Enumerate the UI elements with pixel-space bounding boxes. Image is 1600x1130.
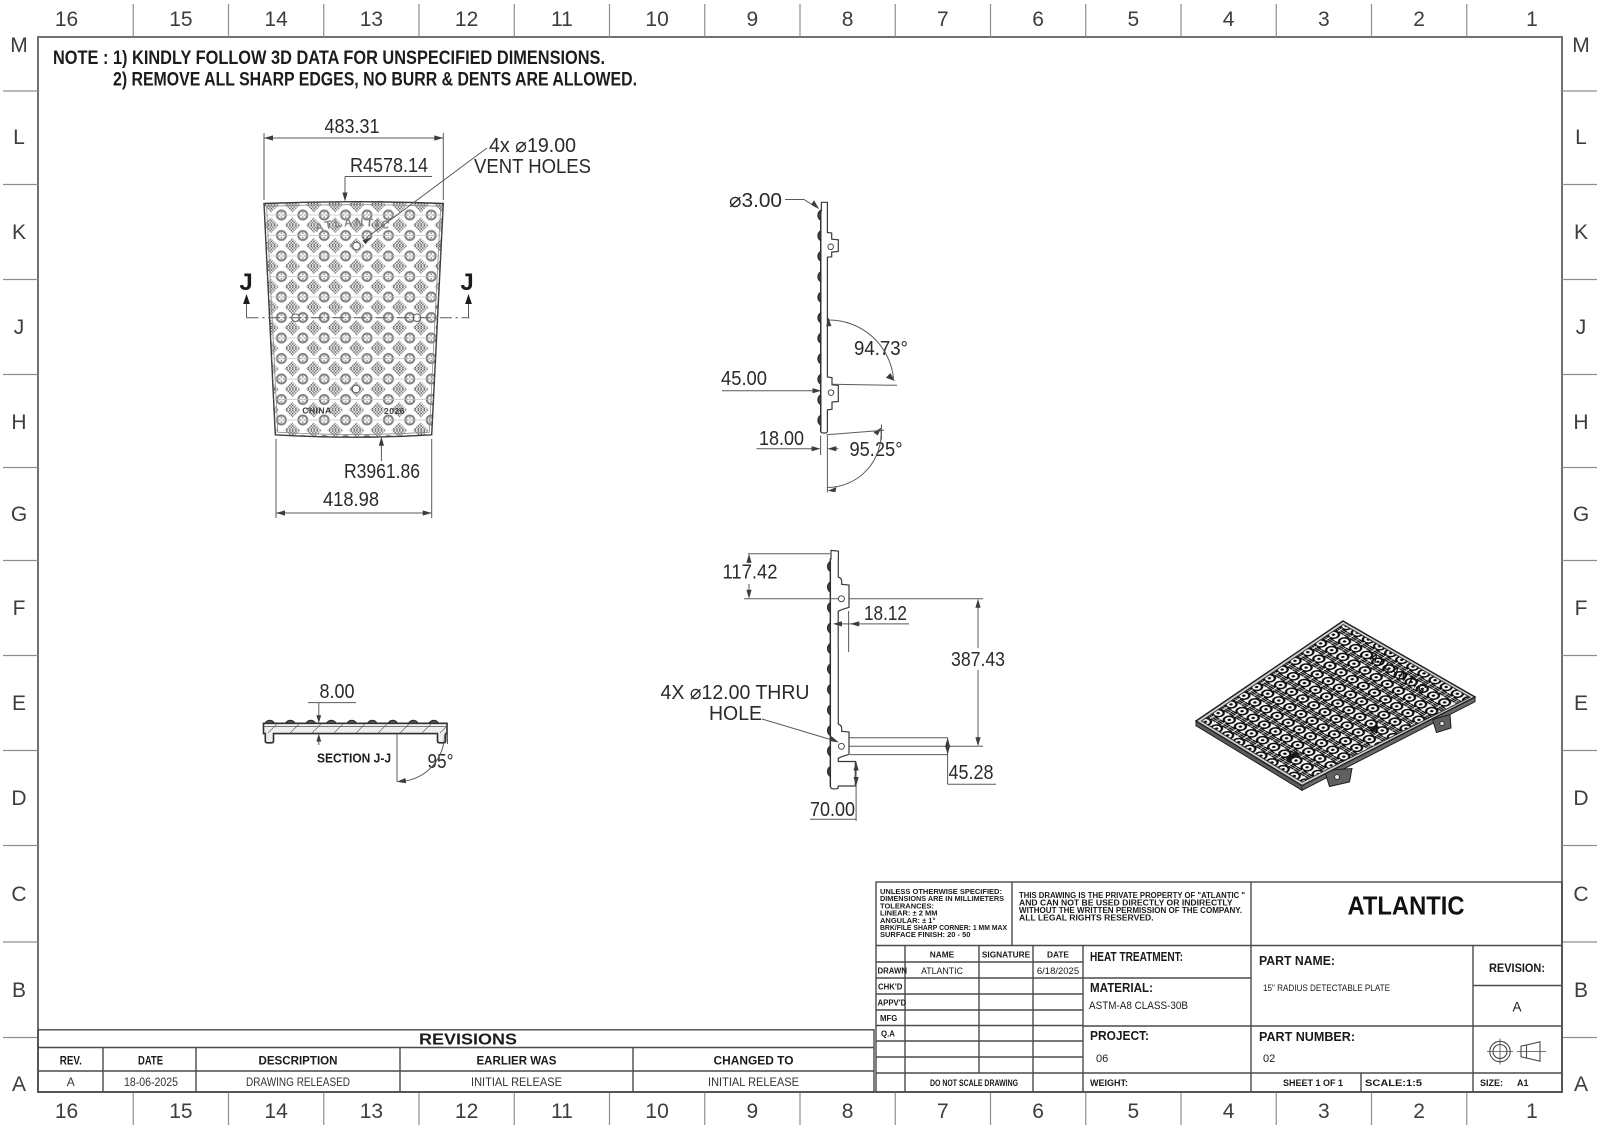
svg-text:F: F <box>1575 597 1588 620</box>
svg-text:8.00: 8.00 <box>320 681 355 703</box>
svg-text:J: J <box>14 316 25 339</box>
svg-text:SCALE:1:5: SCALE:1:5 <box>1365 1078 1422 1088</box>
svg-text:DRAWING RELEASED: DRAWING RELEASED <box>246 1075 350 1089</box>
svg-text:REVISION:: REVISION: <box>1489 963 1545 975</box>
svg-text:DATE: DATE <box>138 1055 163 1067</box>
svg-text:9: 9 <box>747 1100 759 1123</box>
svg-text:4x ⌀19.00: 4x ⌀19.00 <box>489 135 576 157</box>
svg-text:E: E <box>1574 692 1588 715</box>
svg-text:2) REMOVE ALL SHARP EDGES, NO: 2) REMOVE ALL SHARP EDGES, NO BURR & DEN… <box>113 69 637 91</box>
svg-text:12: 12 <box>455 1100 478 1123</box>
svg-text:CHINA: CHINA <box>302 406 331 416</box>
svg-text:⌀3.00: ⌀3.00 <box>729 190 782 212</box>
svg-text:1: 1 <box>1526 1100 1538 1123</box>
svg-text:9: 9 <box>747 8 759 31</box>
svg-text:A: A <box>1574 1073 1588 1096</box>
svg-text:MFG: MFG <box>880 1014 897 1023</box>
svg-text:WEIGHT:: WEIGHT: <box>1090 1078 1128 1088</box>
svg-text:5: 5 <box>1128 1100 1140 1123</box>
svg-text:A: A <box>67 1075 75 1089</box>
svg-text:4: 4 <box>1223 8 1235 31</box>
svg-text:10: 10 <box>645 1100 668 1123</box>
svg-text:10: 10 <box>645 8 668 31</box>
svg-text:R4578.14: R4578.14 <box>350 155 428 177</box>
svg-text:E: E <box>12 692 26 715</box>
svg-text:12: 12 <box>455 8 478 31</box>
svg-text:1: 1 <box>1526 8 1538 31</box>
svg-text:SIGNATURE: SIGNATURE <box>982 950 1031 960</box>
svg-text:5: 5 <box>1128 8 1140 31</box>
svg-text:R3961.86: R3961.86 <box>344 461 420 483</box>
svg-text:18.12: 18.12 <box>864 603 907 625</box>
svg-text:J: J <box>460 269 473 296</box>
svg-text:L: L <box>13 126 25 149</box>
svg-text:2: 2 <box>1413 1100 1425 1123</box>
svg-text:14: 14 <box>264 8 288 31</box>
svg-text:DO NOT SCALE DRAWING: DO NOT SCALE DRAWING <box>930 1078 1018 1088</box>
svg-text:18.00: 18.00 <box>759 428 804 450</box>
svg-text:7: 7 <box>937 1100 949 1123</box>
svg-text:EARLIER WAS: EARLIER WAS <box>477 1055 557 1067</box>
svg-text:NAME: NAME <box>930 950 955 960</box>
svg-text:A1: A1 <box>1517 1078 1529 1088</box>
svg-text:NOTE : 1) KINDLY FOLLOW 3D DAT: NOTE : 1) KINDLY FOLLOW 3D DATA FOR UNSP… <box>53 47 605 69</box>
svg-text:A: A <box>1512 1000 1521 1015</box>
svg-text:J: J <box>239 269 252 296</box>
svg-text:ALL LEGAL RIGHTS RESERVED.: ALL LEGAL RIGHTS RESERVED. <box>1019 913 1154 923</box>
svg-text:M: M <box>10 34 28 57</box>
svg-text:PART NAME:: PART NAME: <box>1259 954 1335 968</box>
svg-text:SHEET 1 OF 1: SHEET 1 OF 1 <box>1283 1078 1343 1088</box>
svg-text:13: 13 <box>360 1100 383 1123</box>
svg-text:3: 3 <box>1318 1100 1330 1123</box>
svg-text:ATLANTIC: ATLANTIC <box>1348 891 1465 921</box>
svg-text:L: L <box>1575 126 1587 149</box>
svg-text:94.73°: 94.73° <box>854 338 908 360</box>
svg-text:A: A <box>12 1073 26 1096</box>
svg-text:387.43: 387.43 <box>951 649 1005 671</box>
svg-text:6: 6 <box>1032 1100 1044 1123</box>
svg-text:D: D <box>1573 787 1588 810</box>
svg-text:6/18/2025: 6/18/2025 <box>1037 966 1079 977</box>
svg-text:CHK'D: CHK'D <box>878 983 903 992</box>
svg-text:Q.A: Q.A <box>881 1030 895 1039</box>
svg-text:15" RADIUS DETECTABLE PLATE: 15" RADIUS DETECTABLE PLATE <box>1263 983 1390 994</box>
svg-text:SIZE:: SIZE: <box>1480 1078 1503 1088</box>
svg-text:2026: 2026 <box>384 406 405 416</box>
svg-text:B: B <box>12 979 26 1002</box>
svg-text:G: G <box>1573 503 1589 526</box>
svg-text:16: 16 <box>55 1100 78 1123</box>
svg-text:F: F <box>13 597 26 620</box>
svg-text:PART NUMBER:: PART NUMBER: <box>1259 1030 1355 1044</box>
svg-text:DATE: DATE <box>1047 950 1069 960</box>
svg-text:MATERIAL:: MATERIAL: <box>1090 981 1153 995</box>
svg-text:18-06-2025: 18-06-2025 <box>124 1075 178 1089</box>
svg-text:3: 3 <box>1318 8 1330 31</box>
svg-text:11: 11 <box>551 1100 573 1123</box>
svg-text:8: 8 <box>842 8 854 31</box>
svg-text:HEAT TREATMENT:: HEAT TREATMENT: <box>1090 950 1183 964</box>
svg-text:APPV'D: APPV'D <box>878 999 907 1008</box>
svg-text:7: 7 <box>937 8 949 31</box>
svg-text:H: H <box>11 411 26 434</box>
svg-text:483.31: 483.31 <box>325 116 380 138</box>
svg-text:H: H <box>1573 411 1588 434</box>
svg-text:DRAWN: DRAWN <box>878 967 908 976</box>
svg-text:PROJECT:: PROJECT: <box>1090 1029 1149 1043</box>
svg-text:14: 14 <box>264 1100 288 1123</box>
svg-text:ATLANTIC: ATLANTIC <box>921 966 964 976</box>
svg-text:VENT HOLES: VENT HOLES <box>474 156 591 178</box>
svg-text:4X ⌀12.00 THRU: 4X ⌀12.00 THRU <box>661 682 810 704</box>
svg-text:02: 02 <box>1263 1053 1275 1065</box>
svg-text:ASTM-A8 CLASS-30B: ASTM-A8 CLASS-30B <box>1089 1000 1188 1012</box>
svg-text:2: 2 <box>1413 8 1425 31</box>
svg-text:M: M <box>1572 34 1590 57</box>
svg-text:SECTION J-J: SECTION J-J <box>317 751 391 766</box>
svg-text:D: D <box>11 787 26 810</box>
svg-text:DESCRIPTION: DESCRIPTION <box>259 1055 338 1067</box>
svg-text:45.28: 45.28 <box>949 762 994 784</box>
svg-text:15: 15 <box>169 8 192 31</box>
svg-text:G: G <box>11 503 27 526</box>
svg-text:J: J <box>1576 316 1587 339</box>
svg-text:13: 13 <box>360 8 383 31</box>
svg-text:B: B <box>1574 979 1588 1002</box>
svg-text:418.98: 418.98 <box>323 489 379 511</box>
svg-text:REVISIONS: REVISIONS <box>419 1032 517 1049</box>
svg-text:06: 06 <box>1096 1053 1108 1065</box>
svg-text:117.42: 117.42 <box>723 562 778 584</box>
svg-text:C: C <box>1573 883 1588 906</box>
svg-text:6: 6 <box>1032 8 1044 31</box>
svg-text:INITIAL RELEASE: INITIAL RELEASE <box>708 1075 799 1089</box>
svg-text:11: 11 <box>551 8 573 31</box>
svg-text:4: 4 <box>1223 1100 1235 1123</box>
svg-text:16: 16 <box>55 8 78 31</box>
svg-text:SURFACE FINISH: 20 - 50: SURFACE FINISH: 20 - 50 <box>880 930 970 939</box>
svg-text:CHANGED TO: CHANGED TO <box>714 1055 794 1067</box>
svg-text:15: 15 <box>169 1100 192 1123</box>
svg-text:C: C <box>11 883 26 906</box>
svg-text:8: 8 <box>842 1100 854 1123</box>
svg-text:45.00: 45.00 <box>721 368 767 390</box>
svg-text:INITIAL RELEASE: INITIAL RELEASE <box>471 1075 562 1089</box>
svg-text:REV.: REV. <box>60 1055 82 1067</box>
svg-text:70.00: 70.00 <box>810 799 855 821</box>
svg-text:K: K <box>1574 221 1588 244</box>
svg-text:HOLE: HOLE <box>709 703 762 725</box>
svg-text:K: K <box>12 221 26 244</box>
